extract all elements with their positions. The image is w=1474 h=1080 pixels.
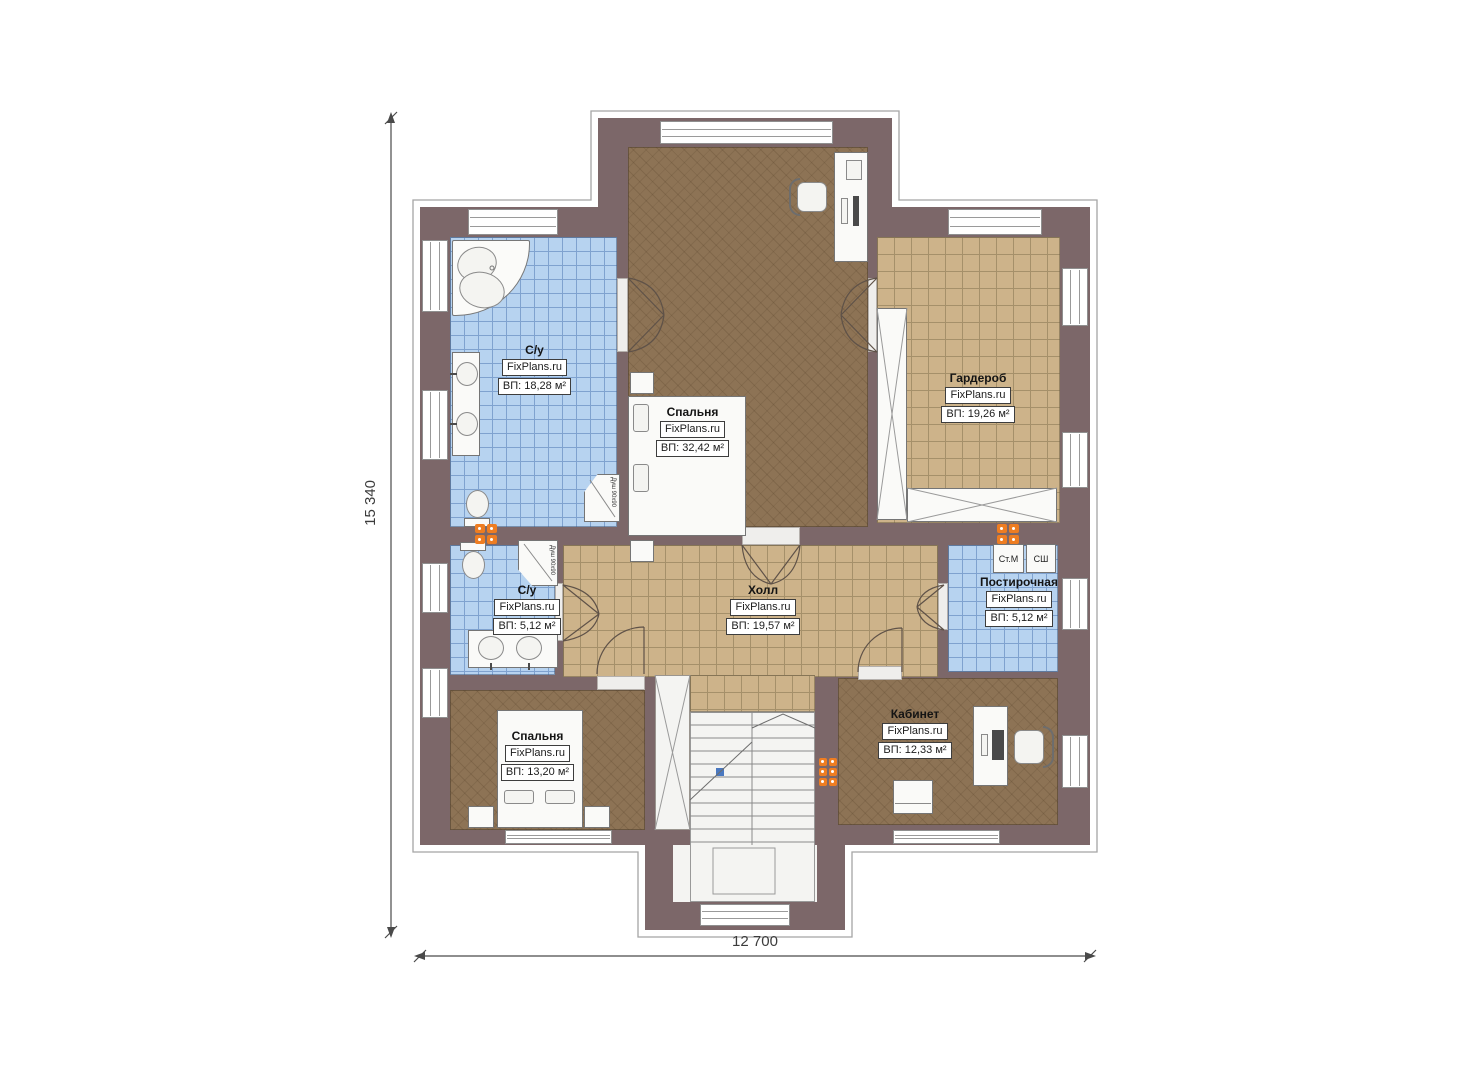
washing-machine-label: Ст.М: [993, 544, 1024, 573]
room-name: Гардероб: [950, 372, 1007, 385]
window-left-3: [422, 563, 448, 613]
window-left-2: [422, 390, 448, 460]
area-label: ВП: 13,20 м²: [501, 764, 574, 781]
brand-label: FixPlans.ru: [505, 745, 570, 762]
room-label-bathroom-middle: С/у FixPlans.ru ВП: 5,12 м²: [487, 584, 567, 635]
nightstand-icon: [468, 806, 494, 828]
window-top-left: [468, 209, 558, 235]
chair-back-icon: [1043, 726, 1054, 768]
printer-icon: [846, 160, 862, 180]
sink-icon: [516, 636, 542, 660]
window-left-4: [422, 668, 448, 718]
area-label: ВП: 5,12 м²: [493, 618, 560, 635]
room-name: С/у: [525, 344, 544, 357]
window-left-1: [422, 240, 448, 312]
room-name: Спальня: [512, 730, 564, 743]
brand-label: FixPlans.ru: [660, 421, 725, 438]
tap-icon: [528, 663, 530, 670]
nightstand-icon: [584, 806, 610, 828]
sink-icon: [478, 636, 504, 660]
pillow-icon: [633, 464, 649, 492]
room-label-bedroom-main: Спальня FixPlans.ru ВП: 32,42 м²: [645, 406, 740, 457]
office-chair-icon: [797, 182, 827, 212]
sink-icon: [456, 412, 478, 436]
room-label-bedroom-second: Спальня FixPlans.ru ВП: 13,20 м²: [490, 730, 585, 781]
dimension-line-width: [414, 950, 1096, 962]
radiator-icon: [997, 524, 1019, 544]
pillow-icon: [504, 790, 534, 804]
room-name: Постирочная: [980, 576, 1058, 589]
monitor-icon: [992, 730, 1004, 760]
door-gap-office: [858, 666, 902, 680]
window-top-bedroom: [660, 121, 833, 144]
room-label-wardrobe: Гардероб FixPlans.ru ВП: 19,26 м²: [933, 372, 1023, 423]
brand-label: FixPlans.ru: [986, 591, 1051, 608]
brand-label: FixPlans.ru: [494, 599, 559, 616]
tap-icon: [450, 373, 457, 375]
room-name: Кабинет: [891, 708, 940, 721]
closet-left: [877, 308, 907, 520]
hall-extension-floor: [690, 675, 815, 712]
area-label: ВП: 19,57 м²: [726, 618, 799, 635]
office-chair-icon: [1014, 730, 1044, 764]
window-porch: [700, 904, 790, 926]
tap-icon: [450, 423, 457, 425]
window-bottom-office: [893, 830, 1000, 844]
toilet-icon: [462, 551, 485, 579]
shower-size-label: Душ 90х90: [549, 545, 555, 575]
floor-plan: Душ 90х90 Душ 90х90 Ст.М СШ: [0, 0, 1474, 1080]
cabinet-icon: [893, 780, 933, 814]
closet-bottom: [907, 488, 1057, 522]
brand-label: FixPlans.ru: [882, 723, 947, 740]
brand-label: FixPlans.ru: [730, 599, 795, 616]
pillow-icon: [545, 790, 575, 804]
drying-cabinet-label: СШ: [1026, 544, 1056, 573]
door-gap-laundry: [938, 583, 948, 630]
radiator-icon: [819, 758, 837, 786]
stairs-marker: [716, 768, 724, 776]
area-label: ВП: 12,33 м²: [878, 742, 951, 759]
nightstand-icon: [630, 540, 654, 562]
window-right-2: [1062, 432, 1088, 488]
radiator-icon: [475, 524, 497, 544]
cabinet-shelf-line: [895, 803, 931, 804]
dimension-height-label: 15 340: [362, 480, 379, 526]
tap-icon: [490, 663, 492, 670]
door-gap-wardrobe: [868, 278, 877, 352]
area-label: ВП: 32,42 м²: [656, 440, 729, 457]
monitor-icon: [853, 196, 859, 226]
sink-icon: [456, 362, 478, 386]
closet-strip: [655, 675, 690, 830]
brand-label: FixPlans.ru: [502, 359, 567, 376]
room-name: Холл: [748, 584, 778, 597]
window-right-4: [1062, 735, 1088, 788]
window-top-right: [948, 209, 1042, 235]
dimension-line-height: [385, 112, 397, 938]
dimension-width-label: 12 700: [700, 933, 810, 950]
keyboard-icon: [981, 734, 988, 756]
window-right-3: [1062, 578, 1088, 630]
area-label: ВП: 19,26 м²: [941, 406, 1014, 423]
stairwell: [690, 712, 815, 902]
room-label-hall: Холл FixPlans.ru ВП: 19,57 м²: [718, 584, 808, 635]
keyboard-icon: [841, 198, 848, 224]
door-gap-bedroom-second: [597, 676, 645, 690]
door-gap-bathroom-top: [617, 278, 628, 352]
window-bottom-bedroom: [505, 830, 612, 844]
room-label-bathroom-top: С/у FixPlans.ru ВП: 18,28 м²: [477, 344, 592, 395]
room-name: Спальня: [667, 406, 719, 419]
shower-size-label: Душ 90х90: [610, 477, 616, 507]
chair-back-icon: [789, 178, 800, 216]
nightstand-icon: [630, 372, 654, 394]
area-label: ВП: 5,12 м²: [985, 610, 1052, 627]
room-label-laundry: Постирочная FixPlans.ru ВП: 5,12 м²: [978, 576, 1060, 627]
door-gap-bedroom-main: [742, 527, 800, 545]
toilet-icon: [466, 490, 489, 518]
room-label-office: Кабинет FixPlans.ru ВП: 12,33 м²: [870, 708, 960, 759]
room-name: С/у: [518, 584, 537, 597]
window-right-1: [1062, 268, 1088, 326]
area-label: ВП: 18,28 м²: [498, 378, 571, 395]
brand-label: FixPlans.ru: [945, 387, 1010, 404]
